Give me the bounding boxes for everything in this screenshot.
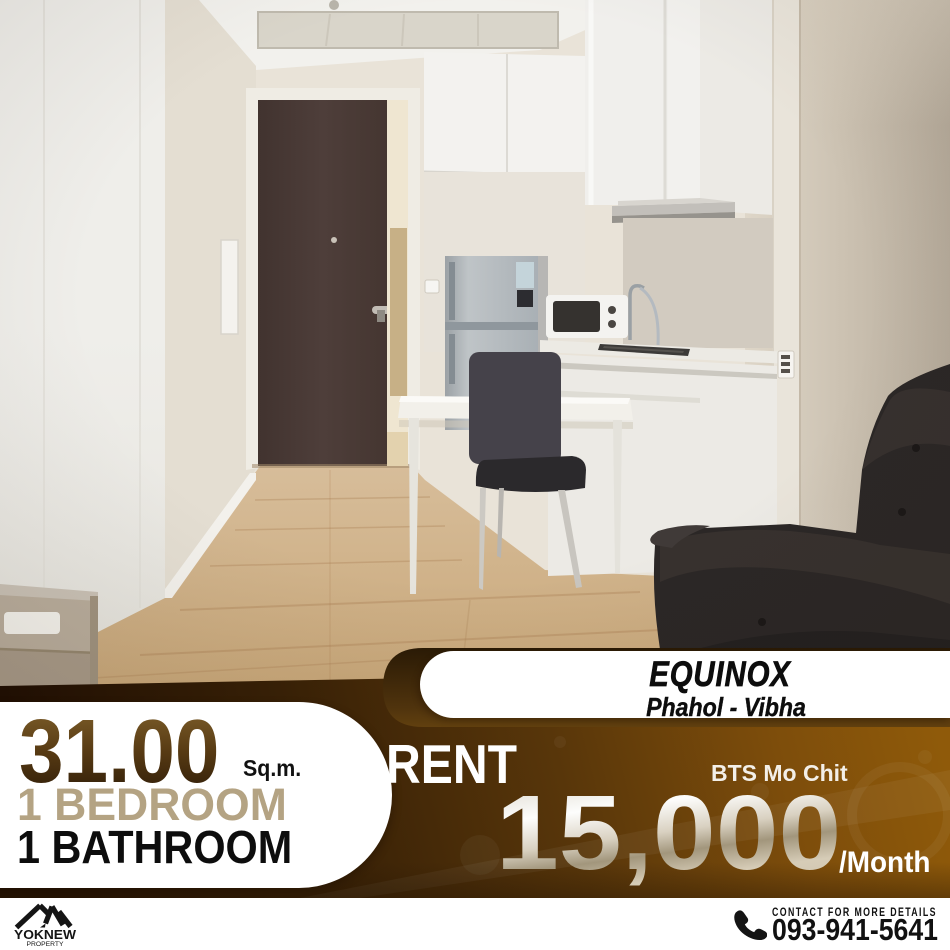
svg-text:PROPERTY: PROPERTY (27, 941, 65, 948)
svg-text:YOKNEW: YOKNEW (14, 927, 77, 942)
